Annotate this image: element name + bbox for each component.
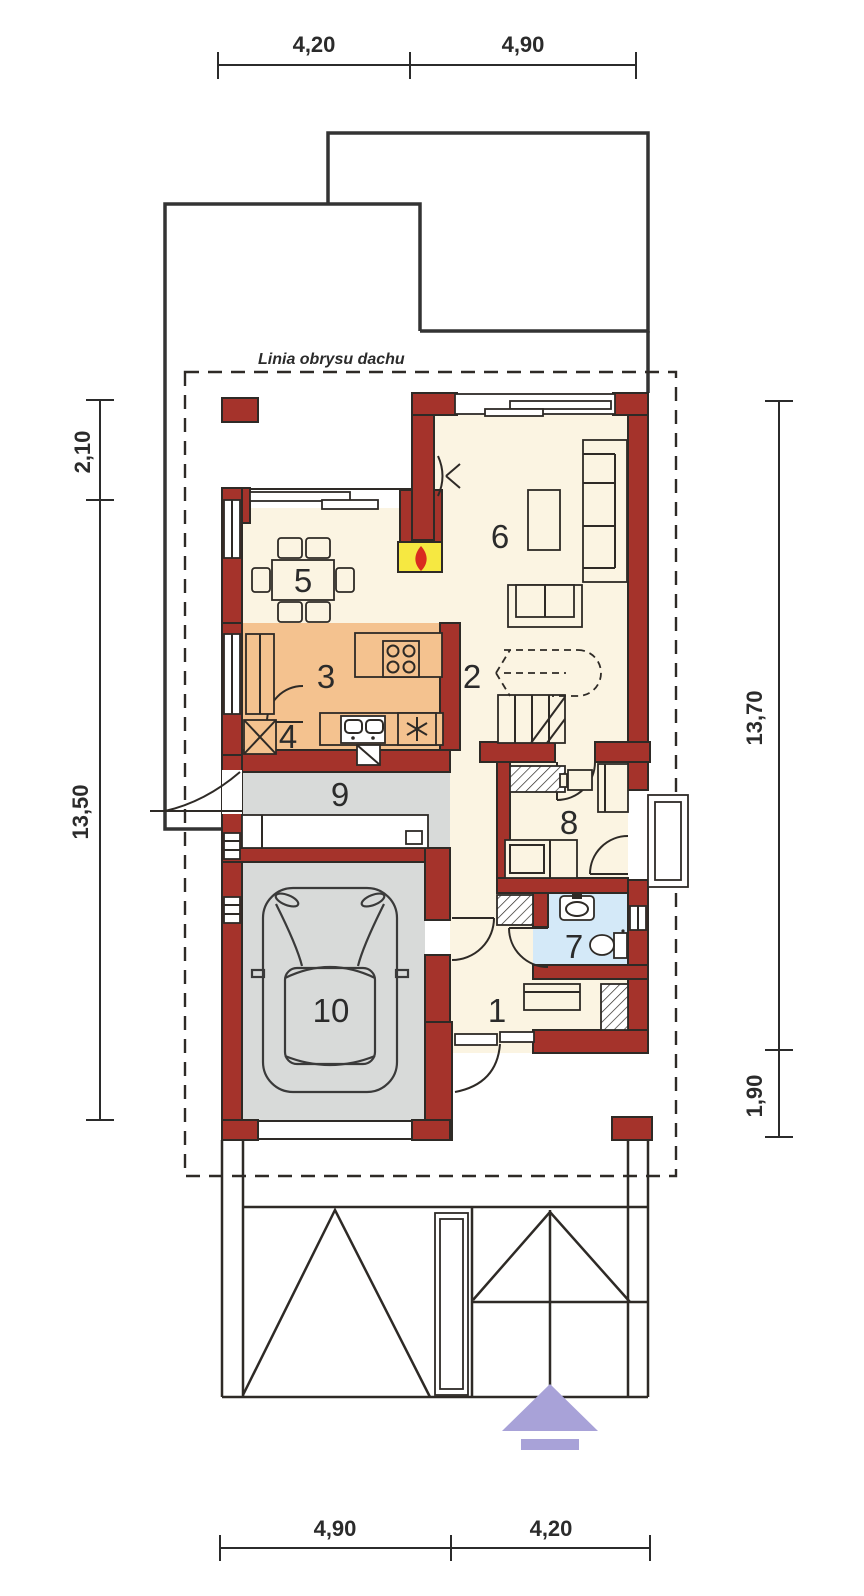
dim-left-upper: 2,10 <box>70 431 95 474</box>
wall-living-top-right <box>613 393 648 415</box>
dining-chair <box>252 568 270 592</box>
bench <box>524 984 580 1010</box>
room-label-9: 9 <box>331 776 349 813</box>
dining-chair <box>306 538 330 558</box>
dim-bottom-right: 4,20 <box>530 1516 573 1541</box>
wall-bath-bottom <box>533 965 648 979</box>
room-label-3: 3 <box>317 658 335 695</box>
room-label-1: 1 <box>488 992 506 1029</box>
window-kitchen-left <box>224 634 240 714</box>
room-label-2: 2 <box>463 658 481 695</box>
boiler-icon <box>357 745 380 765</box>
dim-top-right: 4,90 <box>502 32 545 57</box>
fridge-icon <box>398 713 436 745</box>
sink-icon <box>341 716 385 743</box>
sofa <box>583 440 627 582</box>
wall-porch-pillar <box>612 1117 652 1140</box>
terrace-step <box>648 795 688 887</box>
wall-garage-bottom-left <box>222 1120 258 1140</box>
wardrobe <box>510 766 565 792</box>
room-label-4: 4 <box>279 718 297 755</box>
dining-chair <box>278 538 302 558</box>
wall-room8-bottom <box>497 878 628 893</box>
window-living-top <box>455 394 615 416</box>
dining-chair <box>306 602 330 622</box>
dimension-right: 13,70 1,90 <box>742 401 793 1137</box>
dining-chair <box>336 568 354 592</box>
room-label-8: 8 <box>560 804 578 841</box>
wall-stairs-bottom-b <box>595 742 650 762</box>
pantry-cabinet <box>244 720 276 754</box>
armchair <box>508 585 582 627</box>
wall-stairs-bottom-a <box>480 742 555 762</box>
coffee-table <box>528 490 560 550</box>
room-label-6: 6 <box>491 518 509 555</box>
wall-bath-left <box>533 893 548 927</box>
tall-cabinet <box>246 634 274 714</box>
room-label-10: 10 <box>313 992 350 1029</box>
built-in-wardrobe <box>242 815 428 848</box>
wall-garage-top <box>222 848 450 862</box>
wall-living-top-left <box>412 393 457 415</box>
wall-garage-right-a <box>425 848 450 920</box>
room-label-7: 7 <box>565 928 583 965</box>
dining-chair <box>278 602 302 622</box>
wall-hall-bottom <box>533 1030 648 1053</box>
dim-right-upper: 13,70 <box>742 690 767 745</box>
window-garage-left-2 <box>224 897 240 923</box>
wall-right-upper <box>628 415 648 790</box>
wall-garage-bottom-right <box>412 1120 450 1140</box>
entrance-arrow-icon <box>502 1384 598 1450</box>
driveway <box>222 1140 648 1397</box>
dimension-top: 4,20 4,90 <box>218 32 636 79</box>
washbasin-icon <box>560 893 594 920</box>
dim-right-lower: 1,90 <box>742 1075 767 1118</box>
dim-left-lower: 13,50 <box>68 784 93 839</box>
cooktop-icon <box>383 641 419 677</box>
dim-bottom-left: 4,90 <box>314 1516 357 1541</box>
walkway-strip-inner <box>440 1219 463 1389</box>
floor-plan-drawing: 4,20 4,90 4,90 4,20 2,10 13,50 13,70 1,9… <box>0 0 864 1596</box>
window-bathroom <box>630 906 646 930</box>
wall-garage-right-b <box>425 955 450 1022</box>
coat-closet <box>601 984 628 1030</box>
closet <box>497 895 533 925</box>
window-dining-left <box>224 500 240 558</box>
fireplace <box>398 542 442 572</box>
window-entry-sidelight <box>455 1034 497 1045</box>
desk <box>598 764 628 812</box>
window-dining-top <box>250 489 412 509</box>
dim-top-left: 4,20 <box>293 32 336 57</box>
wall-stub-topleft <box>222 398 258 422</box>
garage-door <box>258 1121 412 1139</box>
dimension-bottom: 4,90 4,20 <box>220 1516 650 1561</box>
bed <box>505 840 577 878</box>
roof-outline-label: Linia obrysu dachu <box>258 351 405 368</box>
kitchen-island <box>355 633 442 677</box>
wall-living-left <box>412 415 434 540</box>
floor-plan-page: 4,20 4,90 4,90 4,20 2,10 13,50 13,70 1,9… <box>0 0 864 1596</box>
room-label-5: 5 <box>294 562 312 599</box>
wall-right-lower <box>628 880 648 1030</box>
dimension-left: 2,10 13,50 <box>68 400 114 1120</box>
window-garage-left-1 <box>224 833 240 859</box>
